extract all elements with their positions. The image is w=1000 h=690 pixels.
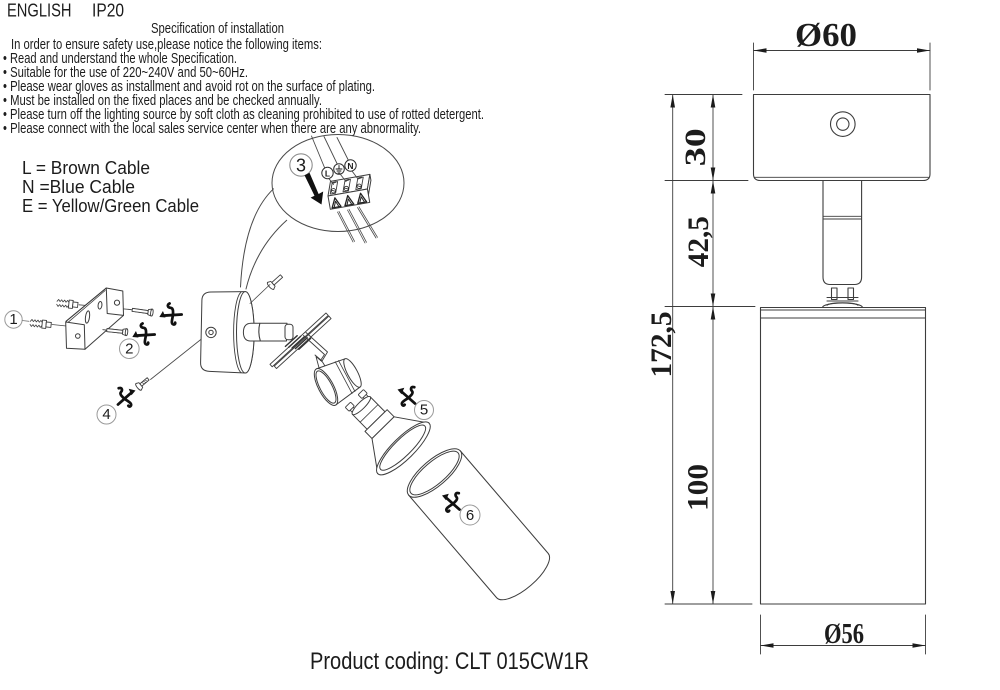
svg-text:L = Brown Cable: L = Brown Cable — [22, 157, 150, 178]
svg-text:Product coding: CLT 015CW1R: Product coding: CLT 015CW1R — [310, 648, 589, 675]
svg-text:5: 5 — [420, 402, 428, 419]
svg-text:Ø60: Ø60 — [795, 17, 857, 54]
svg-text:6: 6 — [466, 507, 474, 524]
svg-text:1: 1 — [9, 311, 17, 328]
svg-text:N =Blue Cable: N =Blue Cable — [22, 176, 135, 197]
svg-text:172,5: 172,5 — [645, 312, 678, 378]
svg-text:Ø56: Ø56 — [824, 619, 864, 650]
svg-text:ENGLISH: ENGLISH — [7, 1, 72, 21]
svg-text:IP20: IP20 — [92, 1, 124, 21]
svg-text:L: L — [325, 169, 330, 179]
svg-text:42,5: 42,5 — [682, 216, 715, 267]
svg-text:E = Yellow/Green Cable: E = Yellow/Green Cable — [22, 195, 199, 216]
svg-text:Specification of installation: Specification of installation — [151, 20, 284, 37]
svg-text:2: 2 — [125, 341, 133, 358]
svg-text:N: N — [347, 161, 353, 171]
svg-text:4: 4 — [102, 406, 110, 423]
svg-text:• Please connect with the loca: • Please connect with the local sales se… — [3, 120, 421, 137]
svg-text:3: 3 — [296, 156, 306, 176]
svg-text:30: 30 — [679, 128, 712, 166]
svg-text:100: 100 — [682, 464, 715, 511]
